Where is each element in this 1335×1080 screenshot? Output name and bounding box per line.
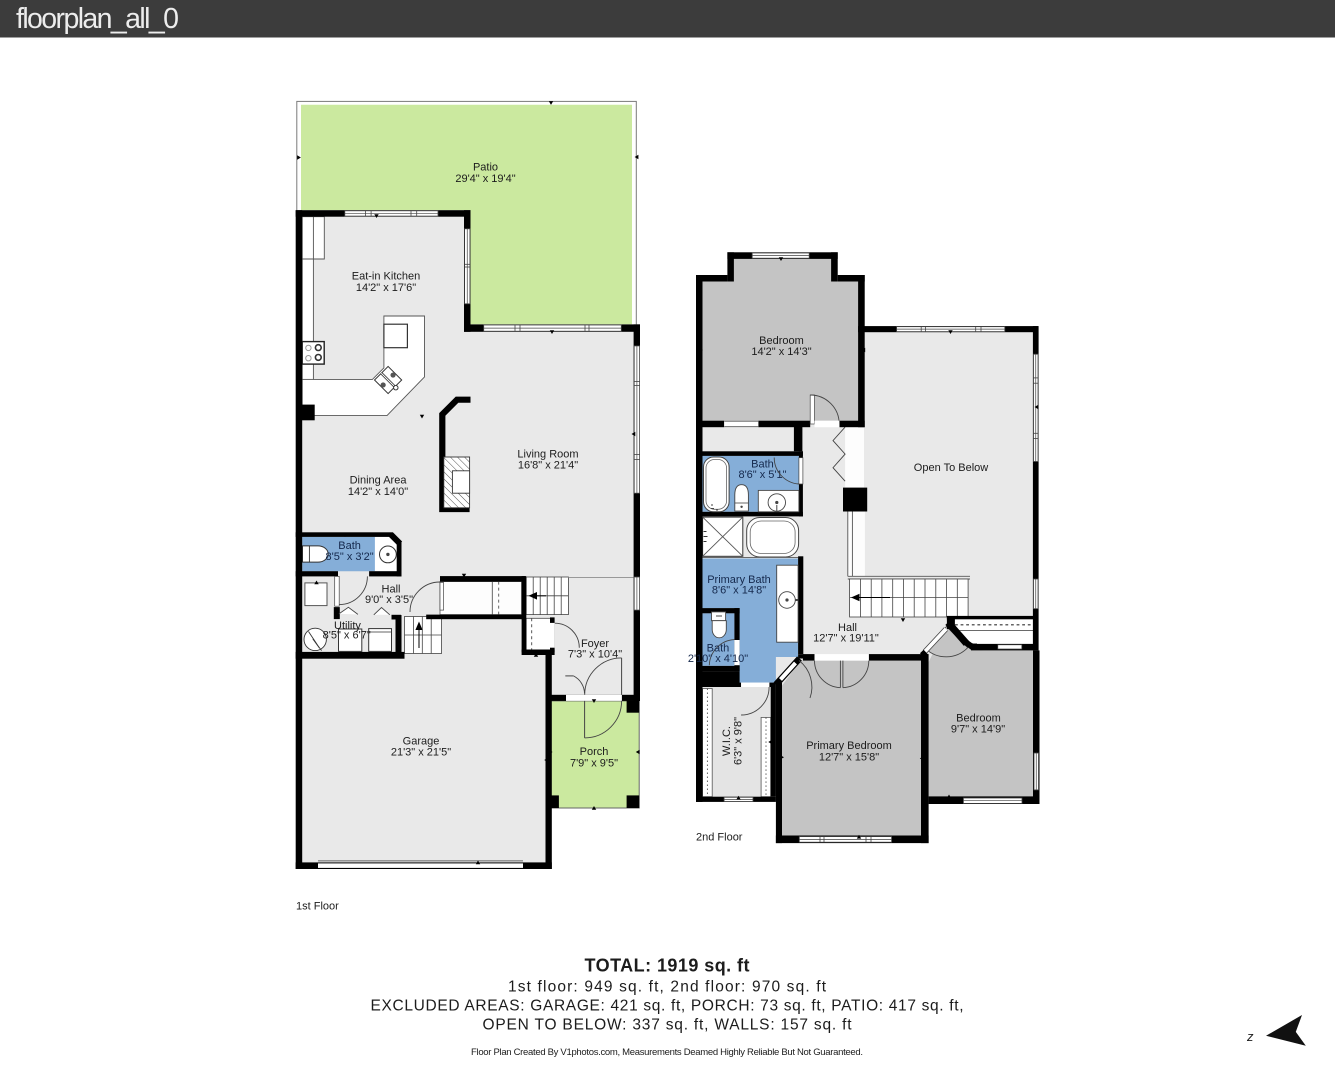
svg-text:12'7" x 19'11": 12'7" x 19'11" <box>813 633 879 645</box>
svg-text:12'7" x 15'8": 12'7" x 15'8" <box>819 752 879 764</box>
svg-text:TOTAL: 1919 sq. ft: TOTAL: 1919 sq. ft <box>585 956 750 976</box>
svg-text:6'3" x 9'8": 6'3" x 9'8" <box>733 717 745 765</box>
svg-text:W.I.C.: W.I.C. <box>721 726 733 756</box>
svg-text:Dining Area: Dining Area <box>350 475 408 487</box>
svg-text:EXCLUDED AREAS: GARAGE: 421 sq: EXCLUDED AREAS: GARAGE: 421 sq. ft, PORC… <box>371 998 964 1015</box>
svg-text:8'6" x 5'1": 8'6" x 5'1" <box>738 469 786 481</box>
svg-text:floorplan_all_0: floorplan_all_0 <box>16 3 179 35</box>
svg-text:1st floor: 949 sq. ft, 2nd flo: 1st floor: 949 sq. ft, 2nd floor: 970 sq… <box>508 979 827 996</box>
svg-text:Porch: Porch <box>580 746 609 758</box>
svg-text:OPEN TO BELOW: 337 sq. ft, WAL: OPEN TO BELOW: 337 sq. ft, WALLS: 157 sq… <box>483 1017 853 1034</box>
svg-text:1st Floor: 1st Floor <box>296 901 339 913</box>
svg-text:Floor Plan Created By V1photos: Floor Plan Created By V1photos.com, Meas… <box>471 1047 863 1058</box>
svg-text:8'6" x 14'8": 8'6" x 14'8" <box>712 585 766 597</box>
svg-text:Eat-in Kitchen: Eat-in Kitchen <box>352 271 420 283</box>
svg-text:8'5" x 6'7": 8'5" x 6'7" <box>323 630 371 642</box>
svg-text:9'0" x 3'5": 9'0" x 3'5" <box>365 594 413 606</box>
svg-text:9'7" x 14'9": 9'7" x 14'9" <box>951 724 1005 736</box>
svg-text:7'9" x 9'5": 7'9" x 9'5" <box>570 758 618 770</box>
svg-text:21'3" x 21'5": 21'3" x 21'5" <box>391 747 451 759</box>
svg-text:14'2" x 17'6": 14'2" x 17'6" <box>356 282 416 294</box>
svg-text:8'5" x 3'2": 8'5" x 3'2" <box>326 551 374 563</box>
svg-text:14'2" x 14'3": 14'2" x 14'3" <box>751 346 811 358</box>
svg-text:Open To Below: Open To Below <box>914 462 988 474</box>
svg-text:2nd Floor: 2nd Floor <box>696 832 743 844</box>
svg-text:14'2" x 14'0": 14'2" x 14'0" <box>348 486 408 498</box>
svg-text:Patio: Patio <box>473 162 498 174</box>
svg-text:2'10" x 4'10": 2'10" x 4'10" <box>688 653 748 665</box>
svg-text:29'4" x 19'4": 29'4" x 19'4" <box>455 173 515 185</box>
svg-text:16'8" x 21'4": 16'8" x 21'4" <box>518 460 578 472</box>
svg-text:Primary Bedroom: Primary Bedroom <box>806 740 892 752</box>
svg-text:z: z <box>1246 1029 1254 1044</box>
